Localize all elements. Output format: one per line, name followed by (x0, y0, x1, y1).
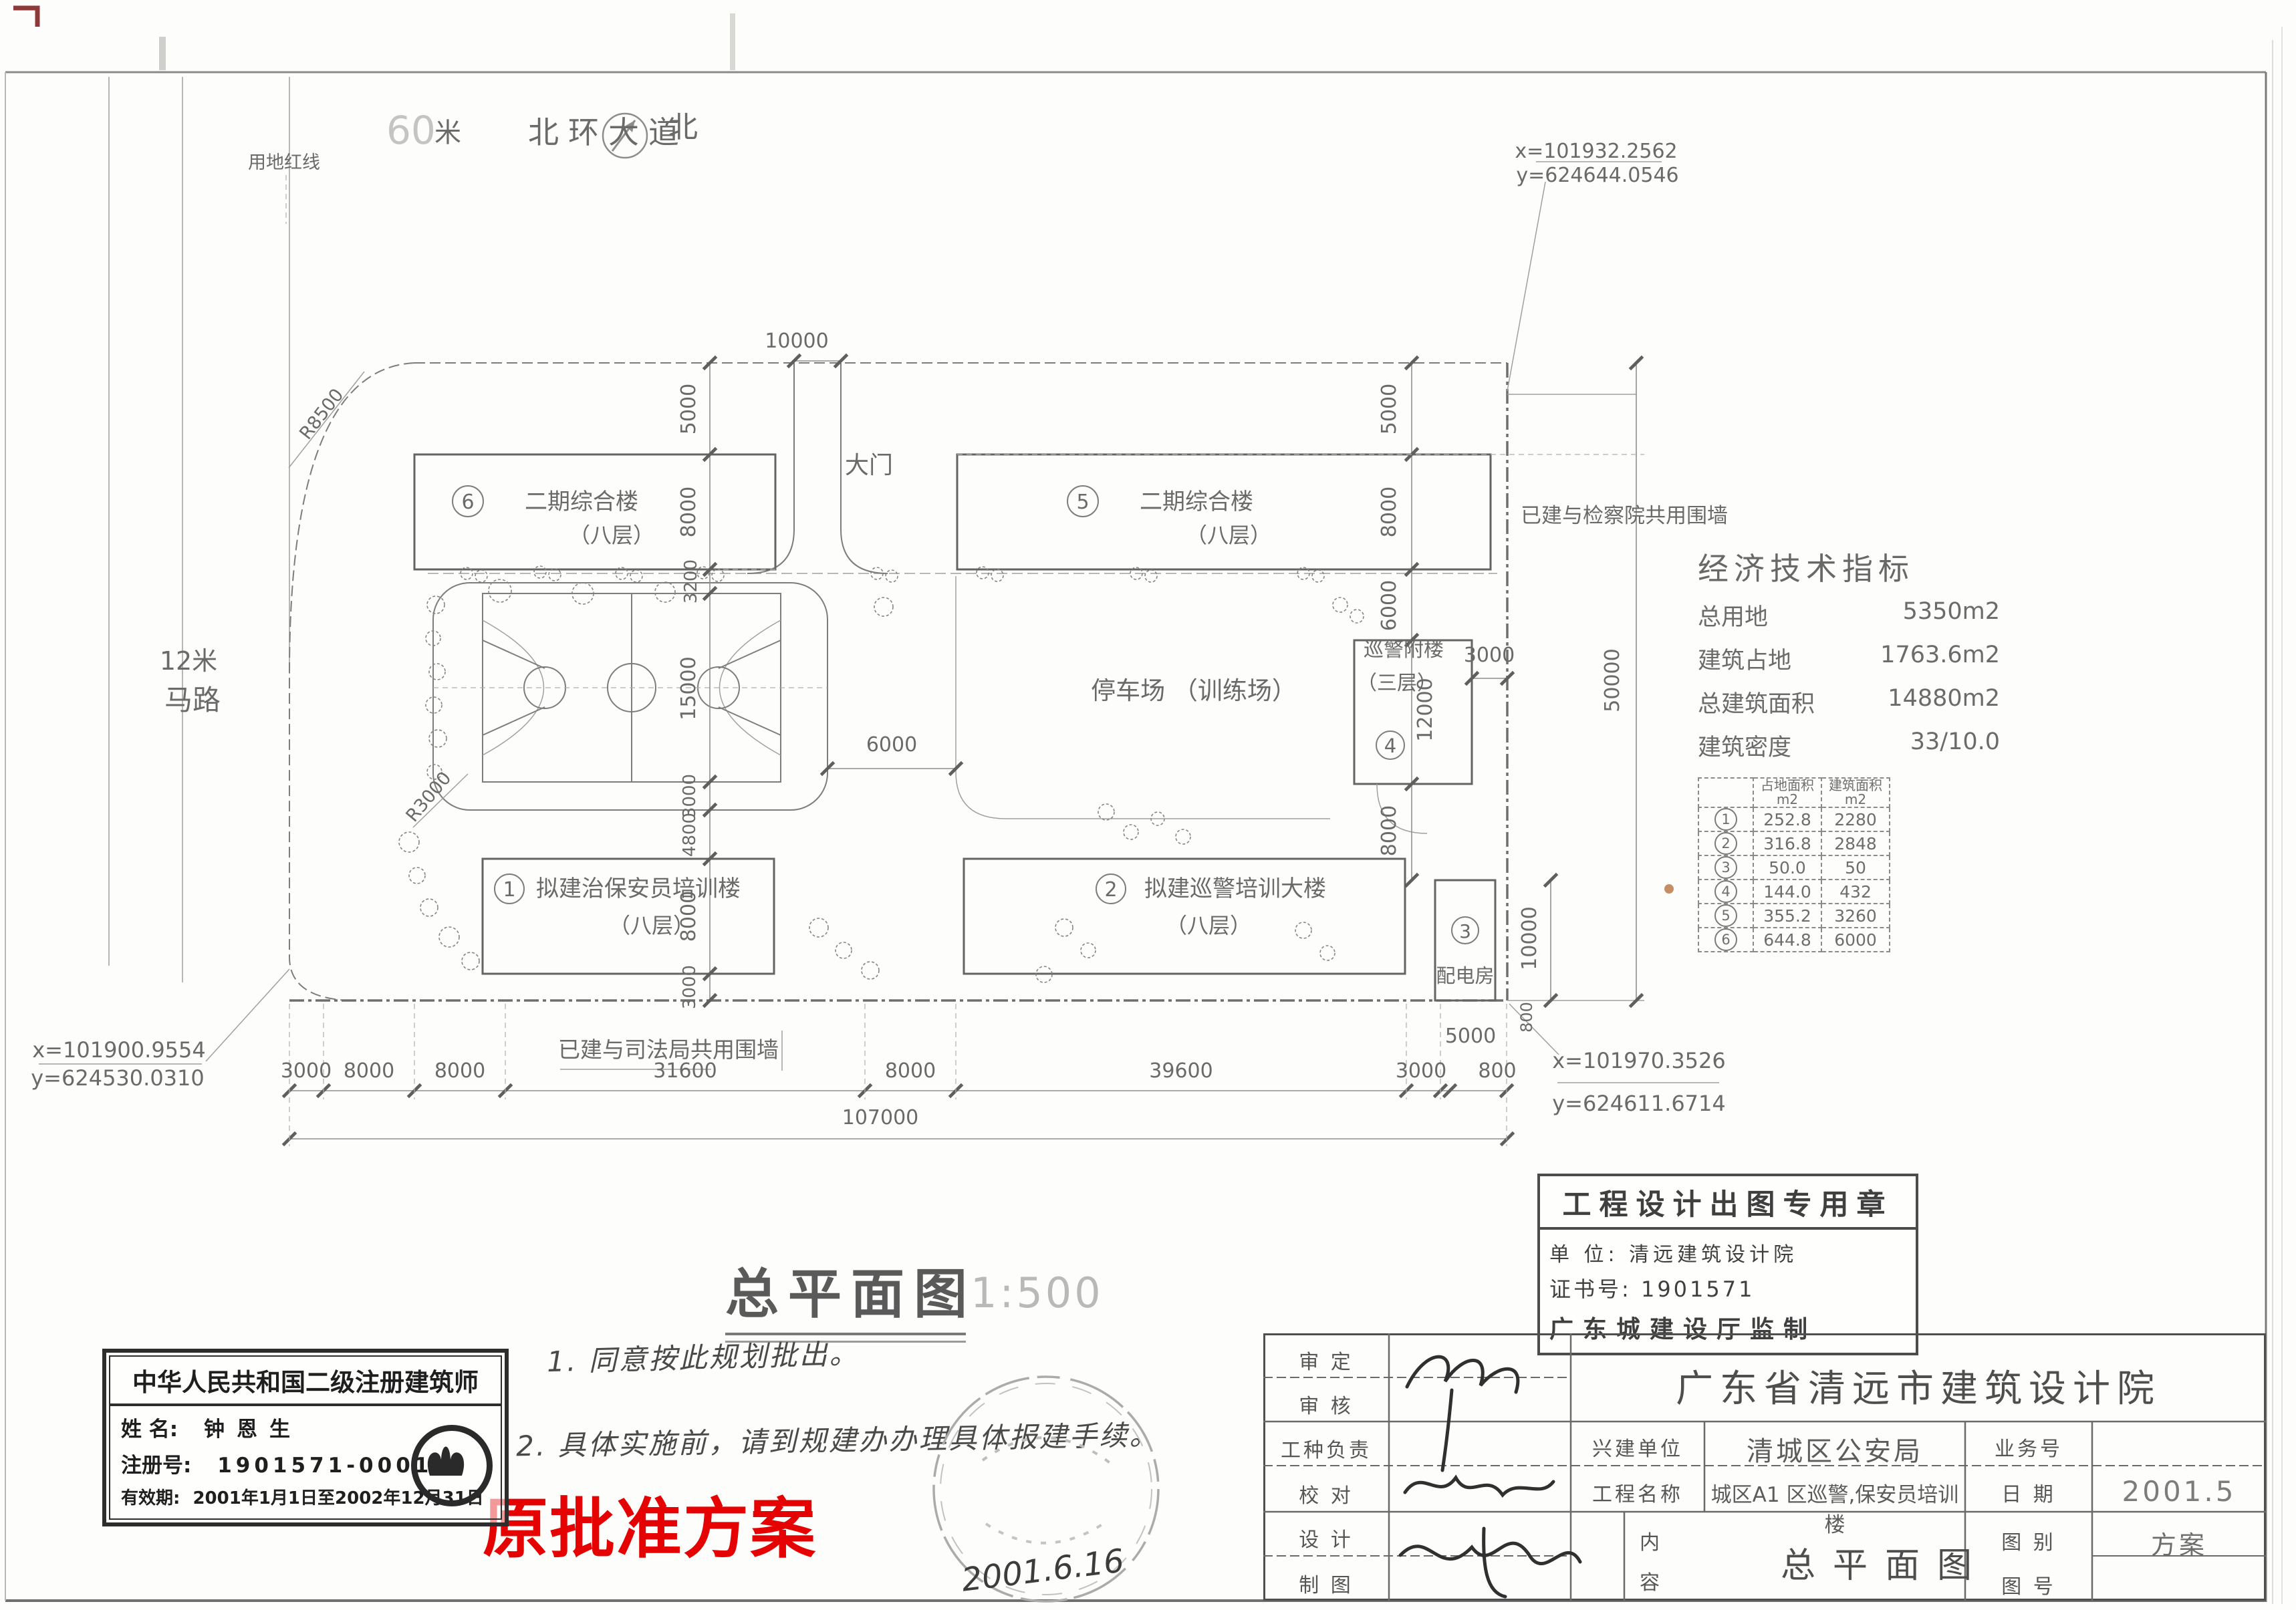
row-label-sheji: 设 计 (1263, 1523, 1389, 1553)
building-1-number: 1 (503, 878, 515, 902)
cell: 3260 (1821, 904, 1890, 928)
dim-total-107000: 107000 (842, 1106, 919, 1129)
building-4 (1354, 640, 1472, 784)
blueprint-sheet: 60 米 北环大道 北 用地红线 12米 马路 x=101932.2562 y=… (0, 0, 2296, 1610)
architect-reg-no: 1901571-0001 (217, 1454, 432, 1478)
table-row: 1252.82280 (1698, 807, 1890, 831)
dim-b4-3000: 3000 (1464, 644, 1515, 667)
econ-value: 1763.6m2 (1880, 642, 2000, 676)
coord-mid-right-y: y=624611.6714 (1552, 1091, 1726, 1116)
dim-right-8000b: 8000 (1378, 805, 1401, 856)
content-label-2: 容 (1624, 1566, 1678, 1595)
table-row: 2316.82848 (1698, 831, 1890, 855)
row-number: 2 (1714, 832, 1737, 855)
dim-b3-10000: 10000 (1518, 906, 1541, 970)
dim-right-6000: 6000 (1378, 580, 1401, 631)
content-value: 总平面图 (1678, 1537, 2092, 1587)
table-row: 350.050 (1698, 855, 1890, 880)
econ-row: 建筑占地 1763.6m2 (1698, 642, 2000, 676)
drawing-title: 总平面图 (725, 1251, 977, 1343)
content-label-1: 内 (1624, 1526, 1678, 1555)
biz-no-label: 业务号 (1965, 1432, 2092, 1462)
stain-dot (1664, 884, 1674, 894)
red-line-west-curve (289, 363, 414, 1000)
name-label: 姓 名: (121, 1418, 178, 1442)
east-wall-label: 已建与检察院共用围墙 (1521, 504, 1728, 528)
dim-50000: 50000 (1601, 648, 1624, 712)
road-width-unit: 米 (434, 118, 461, 148)
row-label-jiaodui: 校 对 (1263, 1479, 1389, 1508)
radius-r3000-label: R3000 (402, 768, 455, 826)
econ-row: 建筑密度 33/10.0 (1698, 728, 2000, 763)
category-value: 方案 (2092, 1524, 2266, 1561)
row-number: 5 (1714, 904, 1737, 927)
econ-title: 经济技术指标 (1698, 545, 2045, 589)
table-row: 5355.23260 (1698, 904, 1890, 928)
client-name: 清城区公安局 (1704, 1430, 1965, 1468)
cell: 50 (1821, 855, 1890, 880)
cell: 2280 (1821, 807, 1890, 831)
dim-court-15000: 15000 (677, 656, 700, 720)
econ-value: 5350m2 (1903, 598, 2000, 632)
row-number: 1 (1714, 808, 1737, 831)
architect-title: 中华人民共和国二级注册建筑师 (110, 1357, 501, 1406)
dim-right-8000: 8000 (1378, 487, 1401, 537)
table-header-row: 占地面积 m2 建筑面积 m2 (1698, 778, 1890, 807)
dim-bottom-31600: 31600 (653, 1059, 717, 1083)
building-4-name: 巡警附楼 (1364, 638, 1444, 662)
dim-bottom-8000b: 8000 (434, 1059, 485, 1083)
cell: 50.0 (1753, 855, 1821, 880)
dim-left-3200: 3200 (681, 559, 701, 603)
west-road-width: 12米 (160, 646, 217, 676)
table-row: 4144.0432 (1698, 880, 1890, 904)
road-width-label: 60 (386, 108, 436, 153)
design-institute-name: 广东省清远市建筑设计院 (1571, 1359, 2266, 1413)
building-6-number: 6 (461, 491, 474, 514)
stamp-unit: 单 位: 清远建筑设计院 (1540, 1230, 1916, 1267)
dim-left-8000b: 8000 (677, 891, 700, 942)
coord-top-right-y: y=624644.0546 (1516, 164, 1678, 187)
dim-left-4800: 4800 (680, 813, 700, 857)
coord-bottom-left-y: y=624530.0310 (31, 1065, 205, 1091)
building-2-number: 2 (1104, 878, 1117, 902)
row-label-gongzhong: 工种负责 (1263, 1434, 1389, 1463)
dim-gate-width: 10000 (765, 329, 828, 353)
building-6-floors: （八层） (569, 523, 654, 548)
dim-bottom-8000a: 8000 (344, 1059, 394, 1083)
cell: 252.8 (1753, 807, 1821, 831)
project-name: 城区A1 区巡警,保安员培训楼 (1701, 1478, 1968, 1538)
north-label: 北 (668, 110, 698, 144)
econ-row: 总建筑面积 14880m2 (1698, 685, 2000, 719)
drawing-release-stamp: 工程设计出图专用章 单 位: 清远建筑设计院 证书号: 1901571 广东城建… (1537, 1174, 1918, 1355)
reg-label: 注册号: (121, 1454, 191, 1478)
red-line-label: 用地红线 (248, 152, 320, 173)
architect-seal-icon (411, 1425, 493, 1506)
title-block: 审 定 审 核 工种负责 校 对 设 计 制 图 广东省清远市建筑设计院 兴建单… (1263, 1333, 2266, 1601)
cell: 644.8 (1753, 928, 1821, 952)
corner-mark (13, 8, 37, 27)
cell: 432 (1821, 880, 1890, 904)
stamp-title: 工程设计出图专用章 (1540, 1176, 1916, 1230)
dim-bottom-3000b: 3000 (1396, 1059, 1446, 1083)
building-5-number: 5 (1076, 491, 1089, 514)
signature (1400, 1357, 1580, 1597)
date-label: 日 期 (1965, 1478, 2092, 1507)
basketball-court (433, 583, 827, 810)
stamp-cert: 证书号: 1901571 (1540, 1267, 1916, 1303)
col-unit: m2 (1777, 791, 1798, 807)
econ-label: 总建筑面积 (1698, 685, 1815, 719)
architect-name: 钟恩生 (204, 1418, 302, 1442)
red-annotation: 原批准方案 (483, 1476, 817, 1571)
building-3-number: 3 (1459, 920, 1471, 942)
drawing-scale: 1:500 (971, 1268, 1104, 1317)
cell: 2848 (1821, 831, 1890, 855)
coord-top-right-x: x=101932.2562 (1515, 140, 1677, 163)
econ-row: 总用地 5350m2 (1698, 598, 2000, 632)
dim-bottom-39600: 39600 (1149, 1059, 1213, 1083)
dim-left-3000b: 3000 (680, 965, 700, 1009)
building-4-number: 4 (1384, 734, 1396, 757)
building-2-name: 拟建巡警培训大楼 (1144, 876, 1326, 902)
econ-value: 33/10.0 (1910, 728, 2000, 763)
client-label: 兴建单位 (1571, 1432, 1704, 1462)
dimension-lines (289, 361, 1644, 1146)
coord-mid-right-x: x=101970.3526 (1552, 1048, 1726, 1073)
north-road-name: 北环大道 (528, 114, 688, 150)
building-5-name: 二期综合楼 (1140, 489, 1253, 515)
cell: 355.2 (1753, 904, 1821, 928)
dim-800: 800 (1517, 1002, 1536, 1033)
handwritten-note-1: 1. 同意按此规划批出。 (546, 1331, 860, 1380)
economic-indicators: 经济技术指标 总用地 5350m2 建筑占地 1763.6m2 总建筑面积 14… (1698, 545, 2045, 952)
dim-bottom-8000c: 8000 (885, 1059, 936, 1083)
building-5-floors: （八层） (1186, 523, 1271, 548)
dim-bottom-3000: 3000 (281, 1059, 332, 1083)
dim-right-12000: 12000 (1414, 678, 1437, 741)
cell: 6000 (1821, 928, 1890, 952)
econ-area-table: 占地面积 m2 建筑面积 m2 1252.82280 2316.82848 35… (1698, 777, 1890, 952)
row-number: 6 (1714, 928, 1737, 951)
row-number: 3 (1714, 856, 1737, 879)
registered-architect-stamp: 中华人民共和国二级注册建筑师 姓 名: 钟恩生 注册号: 1901571-000… (102, 1349, 509, 1526)
coord-bottom-left-x: x=101900.9554 (32, 1037, 206, 1063)
date-value: 2001.5 (2092, 1475, 2266, 1508)
building-3-name: 配电房 (1436, 964, 1494, 987)
dim-left-5000: 5000 (677, 384, 700, 434)
econ-label: 建筑占地 (1698, 642, 1791, 676)
dim-left-8000: 8000 (677, 487, 700, 537)
smudge (159, 37, 166, 70)
building-labels: 6 二期综合楼 （八层） 5 二期综合楼 （八层） 1 拟建治保安员培训楼 （八… (453, 486, 1495, 987)
cell: 316.8 (1753, 831, 1821, 855)
econ-label: 总用地 (1698, 598, 1768, 632)
table-row: 6644.86000 (1698, 928, 1890, 952)
smudge (730, 13, 735, 70)
gate-label: 大门 (845, 452, 893, 479)
west-road-name: 马路 (164, 684, 221, 716)
project-label: 工程名称 (1571, 1478, 1704, 1507)
dim-bottom-5000: 5000 (1445, 1025, 1496, 1048)
building-2-floors: （八层） (1166, 913, 1251, 938)
dim-bottom-800: 800 (1478, 1059, 1516, 1083)
parking-label: 停车场 （训练场） (1091, 676, 1297, 705)
row-label-shending: 审 定 (1263, 1345, 1389, 1375)
dim-court-6000: 6000 (866, 733, 917, 757)
radius-r8500-label: R8500 (295, 385, 348, 444)
drawing-title-text: 总平面图 (725, 1263, 977, 1325)
building-6-name: 二期综合楼 (525, 489, 638, 515)
col-unit: m2 (1845, 791, 1866, 807)
building-1-name: 拟建治保安员培训楼 (536, 876, 741, 902)
row-number: 4 (1714, 880, 1737, 903)
dim-right-5000: 5000 (1378, 384, 1401, 434)
row-label-shenhe: 审 核 (1263, 1389, 1389, 1419)
valid-label: 有效期: (121, 1488, 180, 1508)
dim-left-3000a: 3000 (680, 774, 700, 818)
econ-label: 建筑密度 (1698, 728, 1791, 763)
roads-and-boundary (109, 77, 1644, 1000)
cell: 144.0 (1753, 880, 1821, 904)
econ-value: 14880m2 (1888, 685, 2000, 719)
court-fence (433, 583, 827, 810)
row-label-zhitu: 制 图 (1263, 1569, 1389, 1598)
